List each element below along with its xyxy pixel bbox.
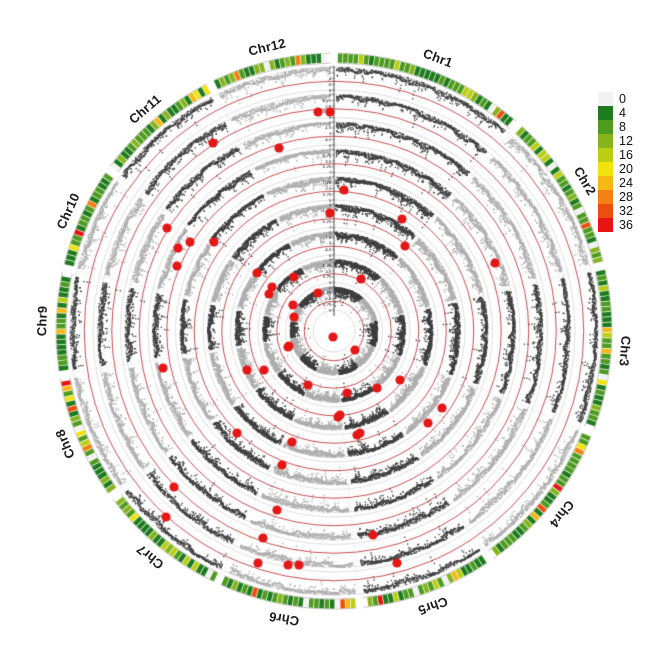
legend-row: 16: [598, 148, 633, 162]
legend-value-label: 4: [613, 106, 626, 120]
legend-row: 24: [598, 176, 633, 190]
legend-value-label: 24: [613, 176, 633, 190]
legend-color-swatch: [598, 106, 613, 120]
legend-row: 0: [598, 92, 633, 106]
legend-row: 8: [598, 120, 633, 134]
legend-value-label: 32: [613, 204, 633, 218]
legend-color-swatch: [598, 92, 613, 106]
legend-value-label: 16: [613, 148, 633, 162]
legend-value-label: 36: [613, 218, 633, 232]
legend-color-swatch: [598, 204, 613, 218]
legend-value-label: 20: [613, 162, 633, 176]
legend-color-swatch: [598, 134, 613, 148]
legend-color-swatch: [598, 148, 613, 162]
chromosome-label-chr3: Chr3: [617, 336, 634, 367]
legend-row: 12: [598, 134, 633, 148]
circular-manhattan-figure: Chr1Chr2Chr3Chr4Chr5Chr6Chr7Chr8Chr9Chr1…: [0, 0, 669, 659]
legend-color-swatch: [598, 120, 613, 134]
legend-color-swatch: [598, 190, 613, 204]
chromosome-label-chr9: Chr9: [34, 305, 50, 336]
legend-value-label: 0: [613, 92, 626, 106]
legend-value-label: 12: [613, 134, 633, 148]
legend-color-swatch: [598, 162, 613, 176]
legend-row: 4: [598, 106, 633, 120]
legend-row: 36: [598, 218, 633, 232]
legend-row: 28: [598, 190, 633, 204]
legend-row: 32: [598, 204, 633, 218]
legend-color-swatch: [598, 176, 613, 190]
legend-value-label: 28: [613, 190, 633, 204]
snp-density-legend: 0 4 8 12 16 20 24 28 32 36: [598, 92, 633, 232]
manhattan-plot-canvas: [0, 0, 669, 659]
legend-row: 20: [598, 162, 633, 176]
legend-color-swatch: [598, 218, 613, 232]
legend-value-label: 8: [613, 120, 626, 134]
